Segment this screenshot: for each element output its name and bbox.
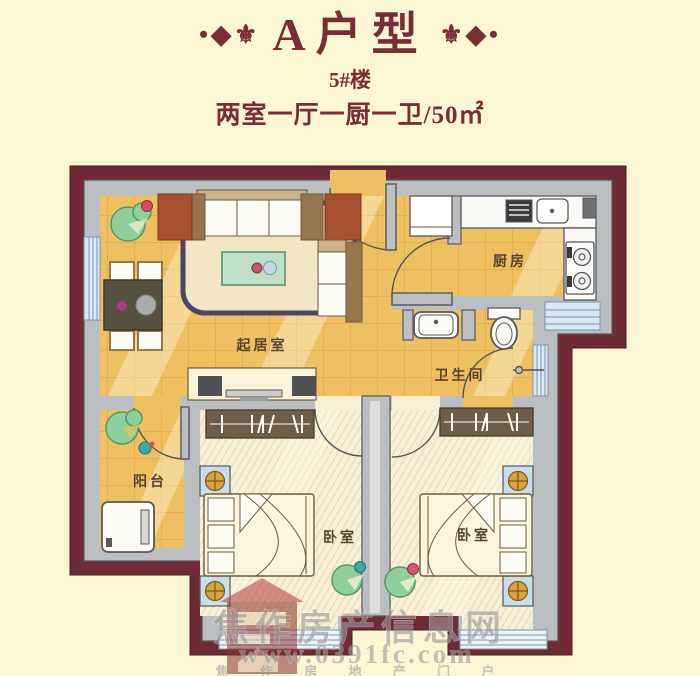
bathroom-label: 卫生间 [435,367,486,384]
fridge [410,196,452,236]
bed-left [204,494,314,576]
bedroom-right-label: 卧室 [457,527,491,544]
living-window [84,237,100,320]
stove [566,242,594,294]
nightstand-right-bottom [503,576,533,606]
living-room-label: 起居室 [236,337,288,354]
ornament-right-icon: ⚜◆• [440,22,501,48]
page-title: A户型 [272,10,427,61]
bedroom-left-label: 卧室 [323,529,357,546]
title-line: •◆⚜ A户型 ⚜◆• [0,10,700,61]
building-number: 5#楼 [0,64,700,94]
title-block: •◆⚜ A户型 ⚜◆• 5#楼 两室一厅一厨一卫/50㎡ [0,10,700,131]
dining-set [104,262,162,350]
tv [226,390,282,397]
coffee-table [222,252,285,285]
ornament-left-icon: •◆⚜ [199,22,260,48]
counter-corner [583,198,596,218]
kitchen-label: 厨房 [493,253,527,270]
sofa [183,190,323,240]
chaise-sofa [318,240,362,322]
floorplan-page: •◆⚜ A户型 ⚜◆• 5#楼 两室一厅一厨一卫/50㎡ [0,0,700,676]
balcony-label: 阳台 [133,473,167,490]
kitchen-window [545,302,600,330]
cup-red [252,263,262,273]
bathroom-sink [414,312,458,338]
toilet [488,308,520,349]
washing-machine [102,502,154,552]
microwave [506,200,532,222]
unit-spec: 两室一厅一厨一卫/50㎡ [0,95,700,131]
nightstand-left-top [200,466,230,496]
watermark-tagline: 焦 作 房 地 产 门 户 [215,664,509,676]
wardrobe-right [440,408,533,436]
cup-blue [264,262,277,275]
wardrobe-left [206,410,314,438]
tv-cabinet [188,368,316,401]
bedroom-divider-gap [370,401,380,613]
nightstand-right-top [503,466,533,496]
